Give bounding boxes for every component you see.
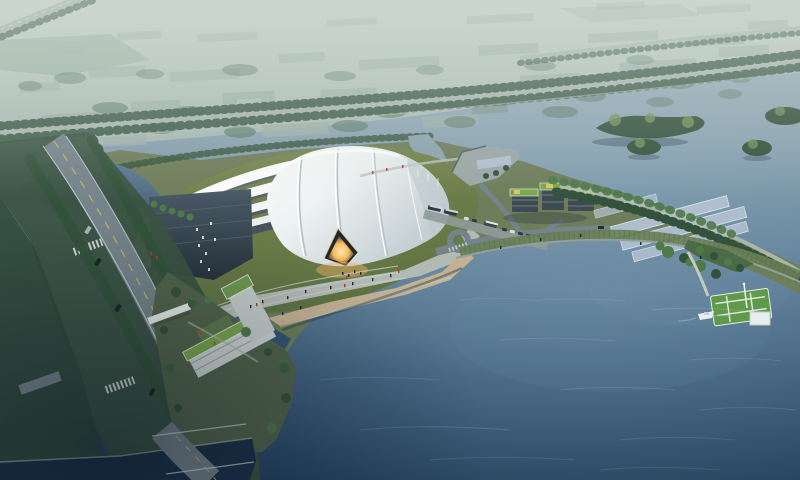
aerial-rendering: [0, 0, 800, 480]
vignette: [0, 0, 800, 480]
rendering-canvas: [0, 0, 800, 480]
